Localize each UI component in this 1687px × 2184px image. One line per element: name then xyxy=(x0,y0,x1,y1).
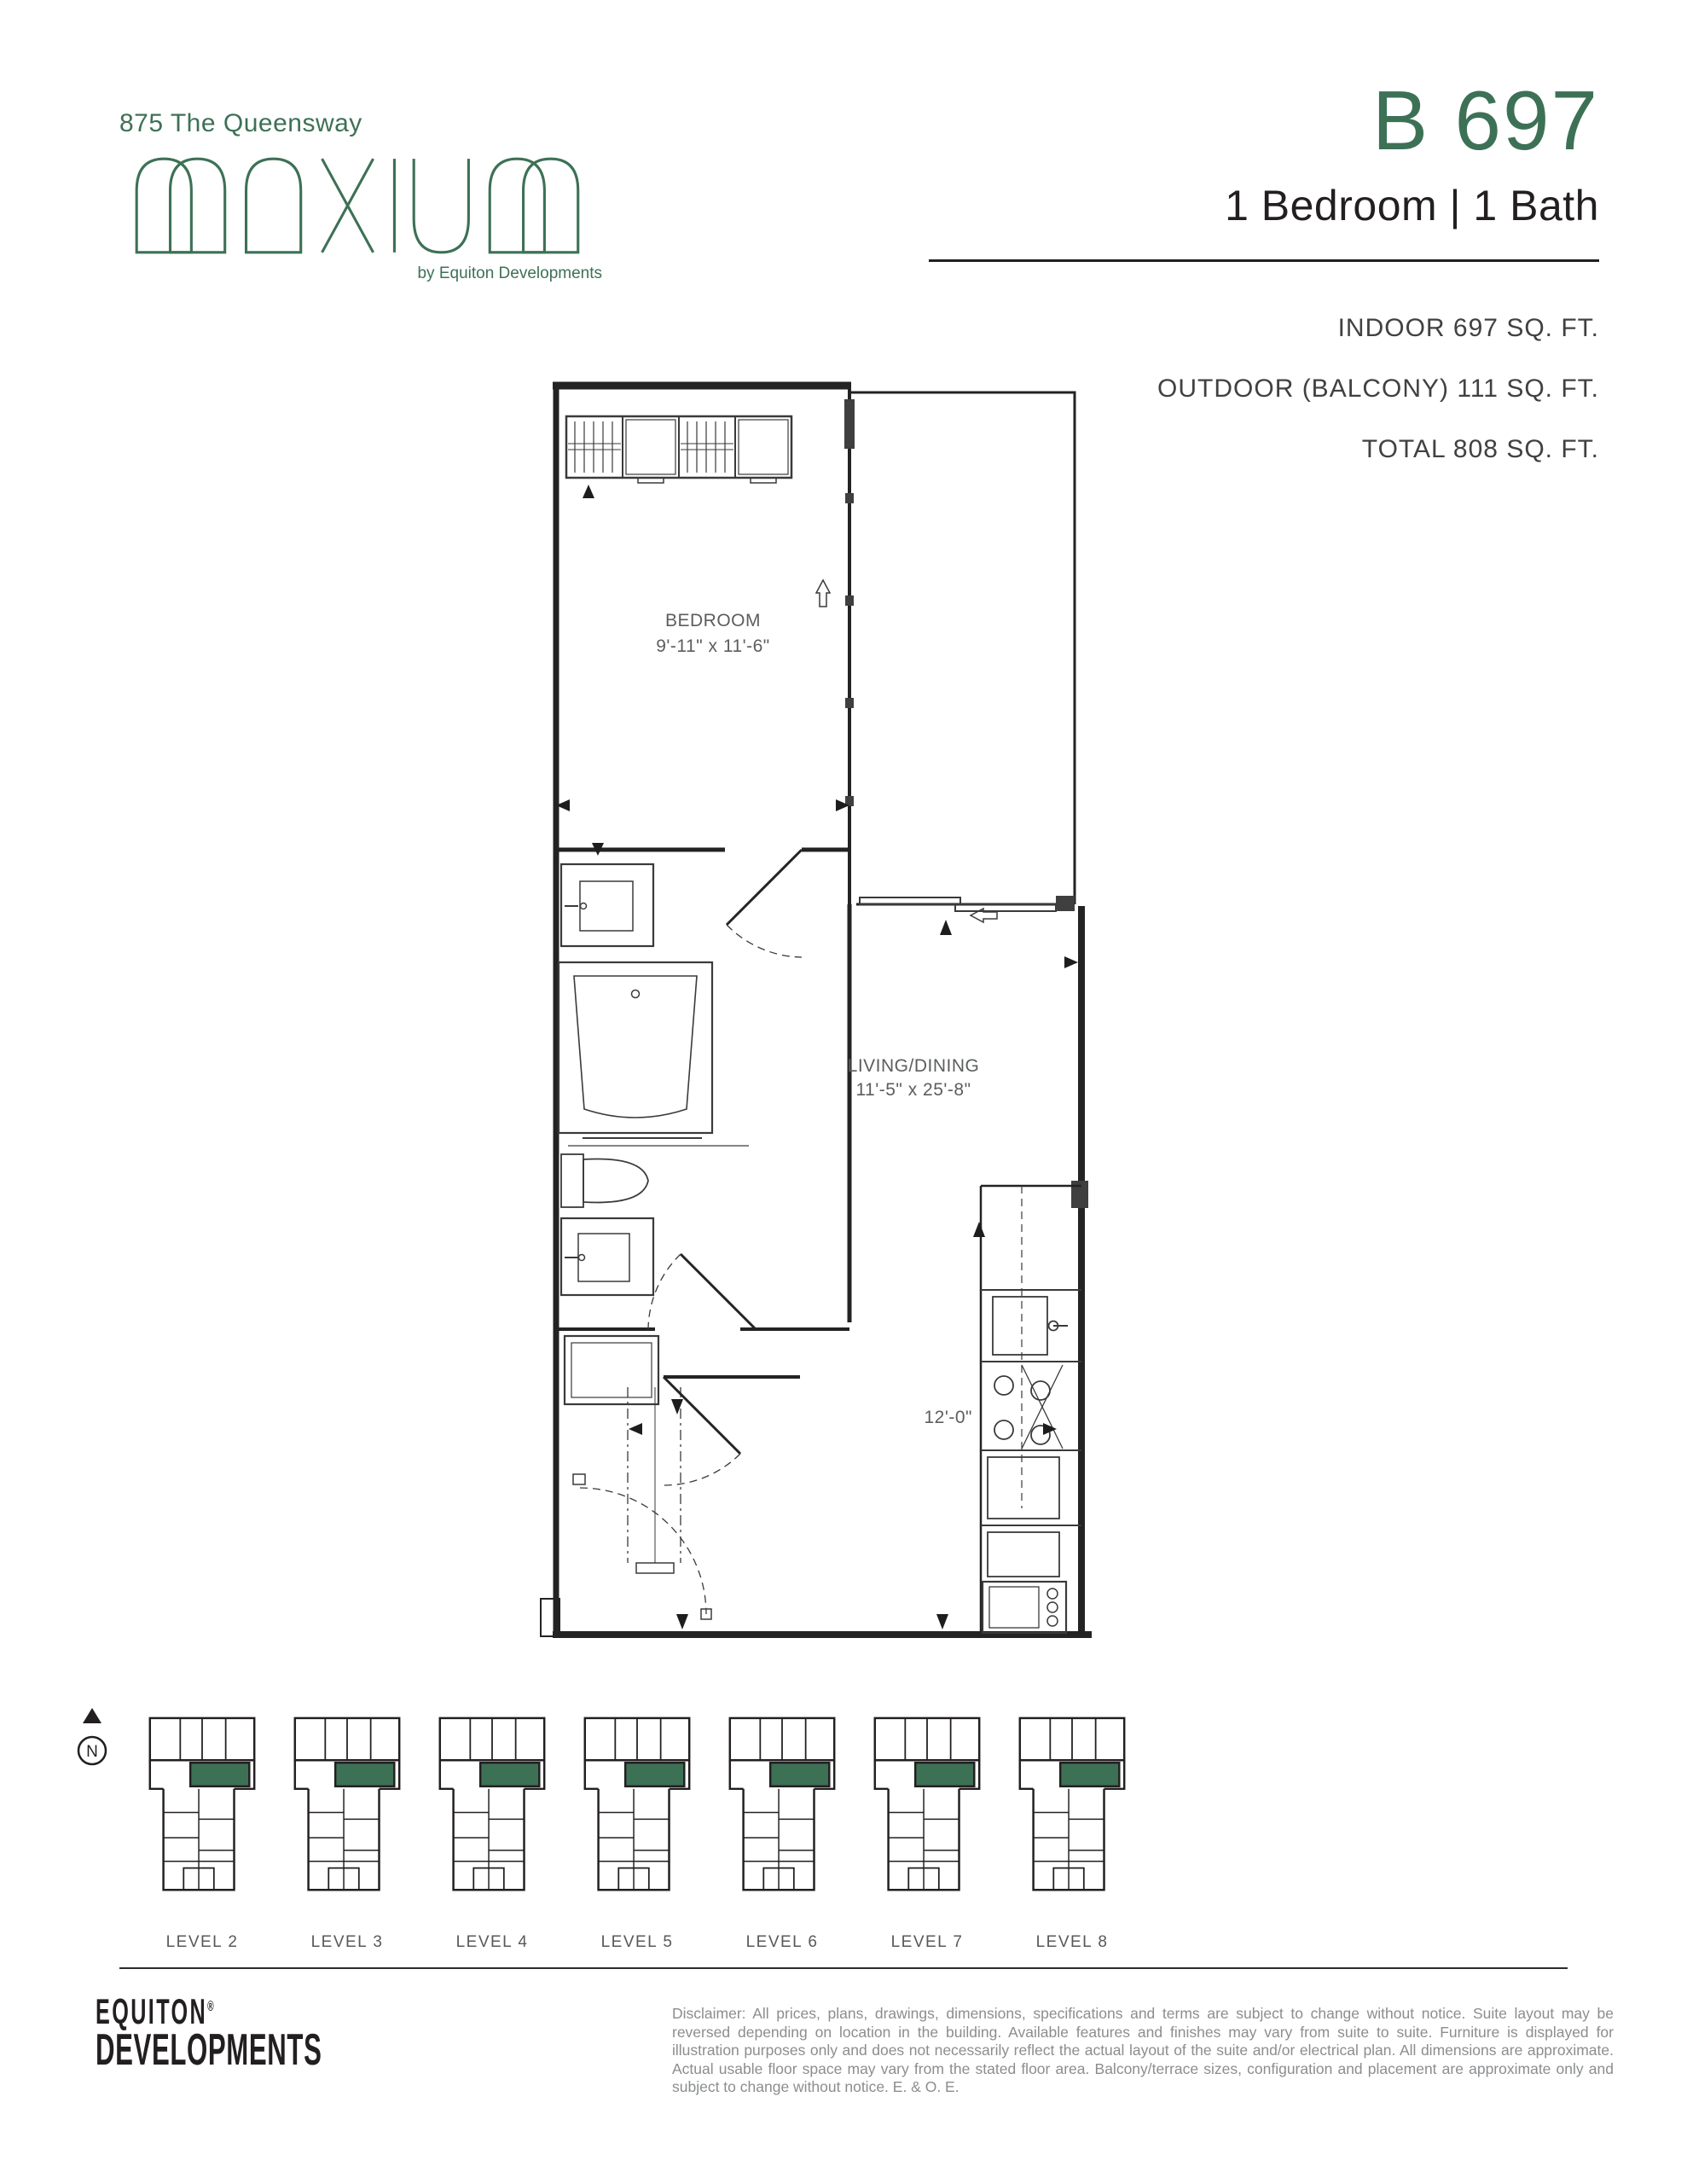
level-label: LEVEL 7 xyxy=(891,1933,964,1952)
footer-divider xyxy=(119,1967,1568,1969)
keyplan-level-6: LEVEL 6 xyxy=(710,1711,855,1952)
logo-byline: by Equiton Developments xyxy=(119,264,602,283)
logo-letter-a-arch xyxy=(246,159,301,253)
bathtub xyxy=(559,962,712,1133)
floor-plan: BEDROOM 9'-11" x 11'-6" xyxy=(536,365,1099,1696)
keyplan-thumbnail xyxy=(142,1711,262,1909)
level-label: LEVEL 6 xyxy=(746,1933,819,1952)
equiton-logo-line2: DEVELOPMENTS xyxy=(96,2030,322,2071)
equiton-logo: EQUITON® DEVELOPMENTS xyxy=(96,1993,322,2071)
logo-letter-m2-arch xyxy=(490,159,544,253)
area-indoor: INDOOR 697 SQ. FT. xyxy=(929,298,1599,358)
level-label: LEVEL 4 xyxy=(456,1933,529,1952)
logo-letter-x xyxy=(322,159,374,253)
logo-letter-m-arch xyxy=(136,159,191,253)
hall-door xyxy=(664,1377,740,1485)
suite-number: B 697 xyxy=(929,78,1599,162)
project-address: 875 The Queensway xyxy=(119,109,602,138)
vanity-sink xyxy=(561,864,653,946)
balcony xyxy=(849,392,1075,922)
suite-divider xyxy=(929,259,1599,262)
bathroom-door xyxy=(648,1254,756,1329)
kitchen xyxy=(981,1181,1088,1633)
bedroom-closet xyxy=(566,416,791,483)
logo-letter-u xyxy=(414,159,468,253)
floorplan-page: 875 The Queensway by Equiton Development… xyxy=(0,0,1687,2184)
level-label: LEVEL 8 xyxy=(1036,1933,1109,1952)
window-wall xyxy=(844,387,855,904)
maxium-logo xyxy=(119,155,597,256)
level-label: LEVEL 3 xyxy=(311,1933,384,1952)
kitchen-dim-label: 12'-0" xyxy=(925,1408,973,1427)
keyplan-level-4: LEVEL 4 xyxy=(420,1711,565,1952)
entry-door xyxy=(573,1474,711,1619)
toilet xyxy=(561,1154,648,1207)
living-dims: 11'-5" x 25'-8" xyxy=(855,1080,971,1100)
level-keyplans: LEVEL 2 LEVEL 3 LEVEL 4 LEVEL 5 LEVEL 6 … xyxy=(130,1711,1145,1952)
exterior-walls xyxy=(541,382,1092,1636)
registered-mark: ® xyxy=(207,1998,214,2014)
keyplan-thumbnail xyxy=(867,1711,987,1909)
keyplan-thumbnail xyxy=(722,1711,842,1909)
keyplan-level-2: LEVEL 2 xyxy=(130,1711,275,1952)
vanity-2 xyxy=(561,1218,653,1295)
keyplan-level-3: LEVEL 3 xyxy=(275,1711,420,1952)
level-label: LEVEL 2 xyxy=(166,1933,239,1952)
fridge xyxy=(983,1582,1066,1633)
north-arrow: N xyxy=(73,1706,111,1793)
keyplan-level-8: LEVEL 8 xyxy=(1000,1711,1145,1952)
brand-block: 875 The Queensway by Equiton Development… xyxy=(119,109,602,283)
keyplan-thumbnail xyxy=(577,1711,697,1909)
door-swing-arrow-icon xyxy=(816,580,830,607)
keyplan-thumbnail xyxy=(432,1711,552,1909)
cabinet xyxy=(988,1532,1059,1577)
north-letter: N xyxy=(86,1743,98,1761)
keyplan-thumbnail xyxy=(287,1711,407,1909)
coat-closet xyxy=(628,1387,681,1573)
kitchen-sink xyxy=(981,1290,1081,1362)
keyplan-level-5: LEVEL 5 xyxy=(565,1711,710,1952)
living-label: LIVING/DINING xyxy=(848,1056,980,1076)
bedroom-door xyxy=(727,850,802,957)
bathroom xyxy=(559,864,756,1329)
cooktop xyxy=(981,1365,1081,1450)
disclaimer-text: Disclaimer: All prices, plans, drawings,… xyxy=(672,2005,1614,2097)
bedroom-label: BEDROOM xyxy=(665,611,761,630)
laundry-closet xyxy=(565,1336,658,1404)
suite-type: 1 Bedroom | 1 Bath xyxy=(929,181,1599,230)
keyplan-level-7: LEVEL 7 xyxy=(855,1711,1000,1952)
oven xyxy=(988,1457,1059,1519)
keyplan-thumbnail xyxy=(1012,1711,1132,1909)
level-label: LEVEL 5 xyxy=(601,1933,674,1952)
bedroom-dims: 9'-11" x 11'-6" xyxy=(656,636,770,656)
